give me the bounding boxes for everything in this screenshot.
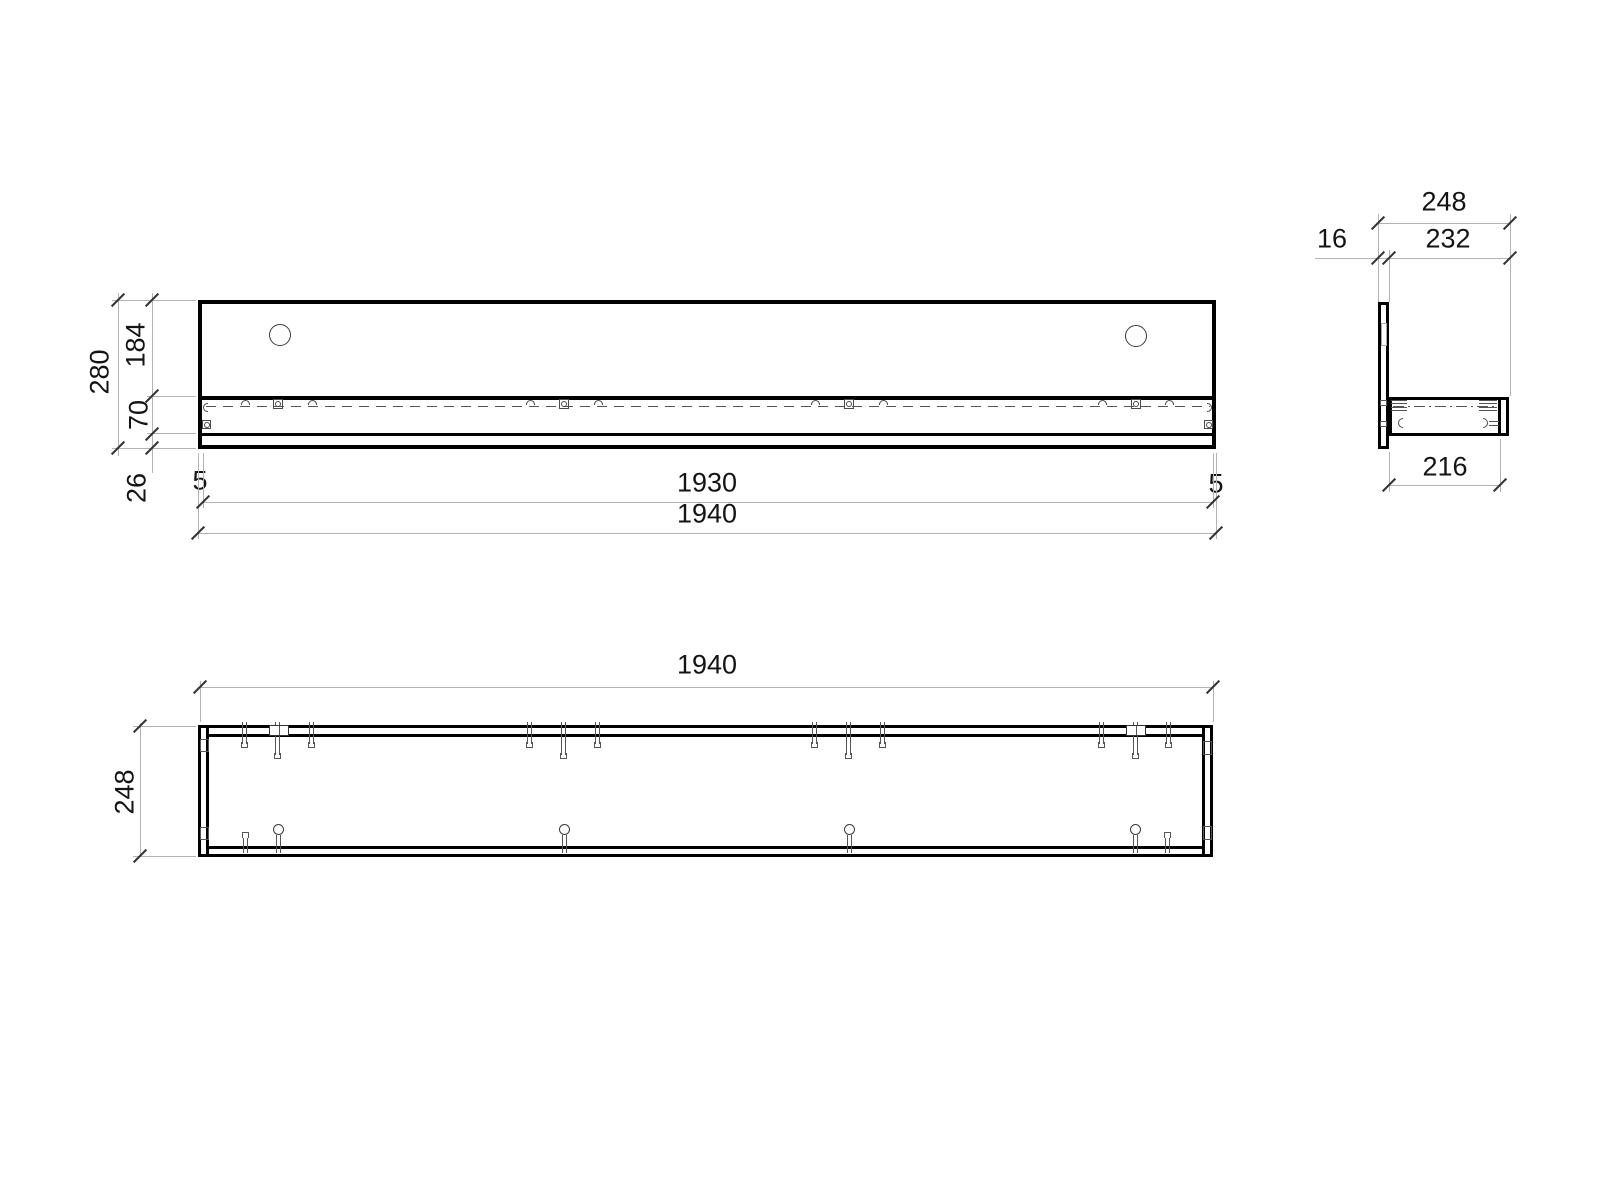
dimension-lines bbox=[0, 0, 1606, 1204]
dimension-line bbox=[147, 433, 196, 434]
dimension-line bbox=[1389, 485, 1500, 486]
dimension-line bbox=[198, 687, 1213, 688]
dimension-line bbox=[118, 293, 119, 456]
dimension-line bbox=[1315, 258, 1510, 259]
dimension-line bbox=[112, 300, 196, 301]
dimension-line bbox=[133, 856, 196, 857]
dimension-line bbox=[147, 396, 196, 397]
dimension-line bbox=[203, 502, 1213, 503]
dimension-line bbox=[112, 448, 196, 449]
dimension-line bbox=[198, 533, 1216, 534]
dimension-line bbox=[198, 453, 199, 539]
dimension-line bbox=[1378, 223, 1510, 224]
dimension-line bbox=[140, 723, 141, 857]
drawing-canvas: 280 184 70 26 5 5 1930 1940 248 232 16 2… bbox=[0, 0, 1606, 1204]
dimension-line bbox=[1510, 214, 1511, 396]
dimension-line bbox=[133, 726, 196, 727]
